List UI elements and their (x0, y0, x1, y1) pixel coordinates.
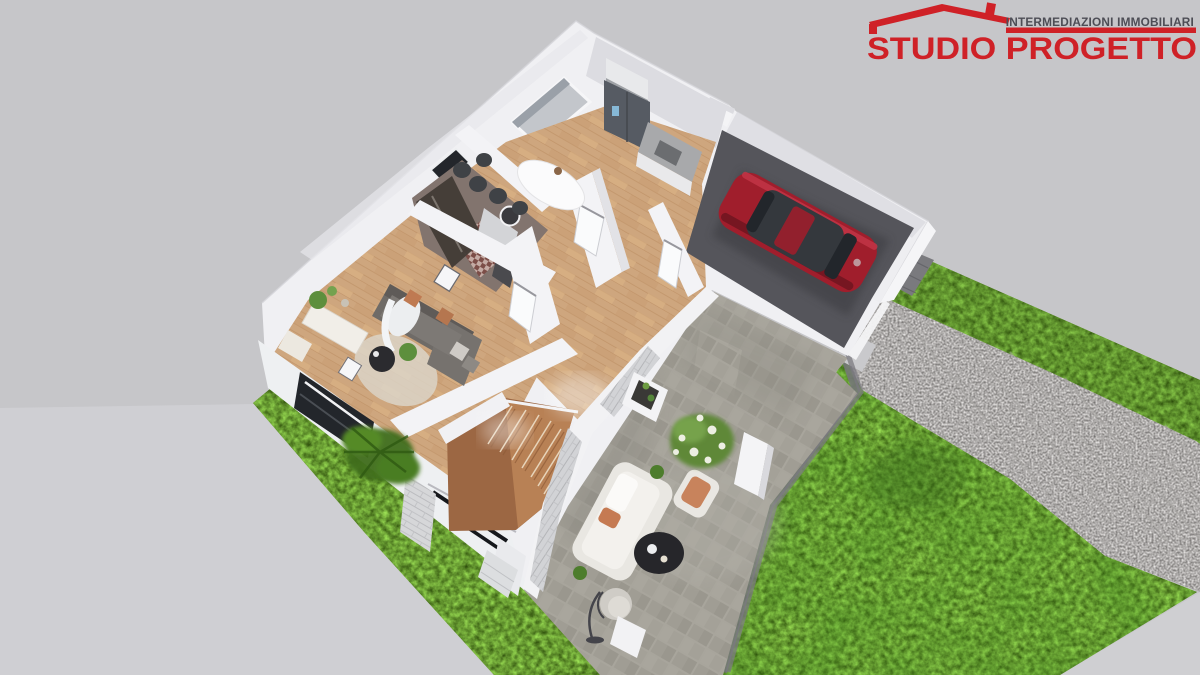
svg-text:INTERMEDIAZIONI IMMOBILIARI: INTERMEDIAZIONI IMMOBILIARI (1006, 15, 1194, 29)
svg-text:STUDIO PROGETTO: STUDIO PROGETTO (867, 30, 1197, 66)
